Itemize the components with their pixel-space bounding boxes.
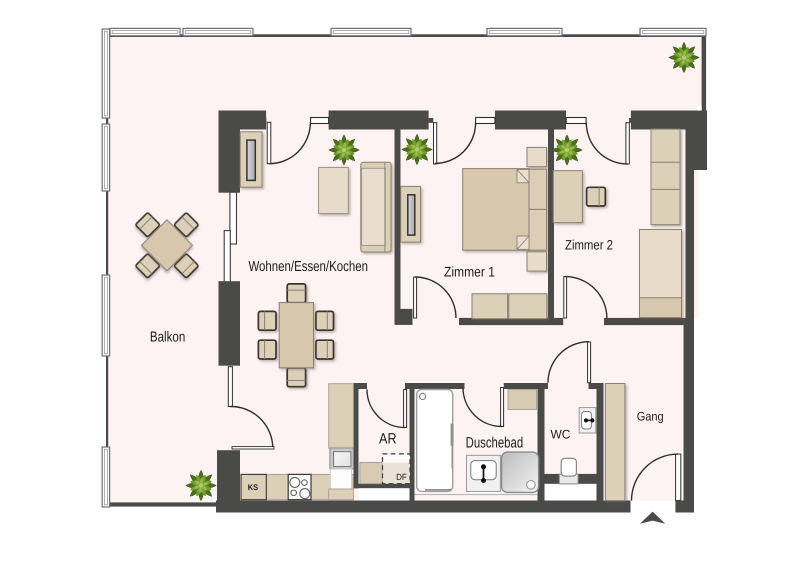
- svg-text:WC: WC: [550, 428, 570, 442]
- svg-text:Zimmer 1: Zimmer 1: [444, 264, 495, 280]
- svg-text:KS: KS: [248, 483, 259, 492]
- svg-text:AR: AR: [379, 430, 397, 447]
- svg-text:Duschebad: Duschebad: [466, 434, 524, 451]
- svg-text:DF: DF: [396, 472, 407, 482]
- svg-text:Wohnen/Essen/Kochen: Wohnen/Essen/Kochen: [248, 259, 368, 275]
- svg-text:Balkon: Balkon: [150, 330, 185, 346]
- svg-text:Zimmer 2: Zimmer 2: [565, 237, 613, 252]
- svg-text:Gang: Gang: [637, 410, 664, 424]
